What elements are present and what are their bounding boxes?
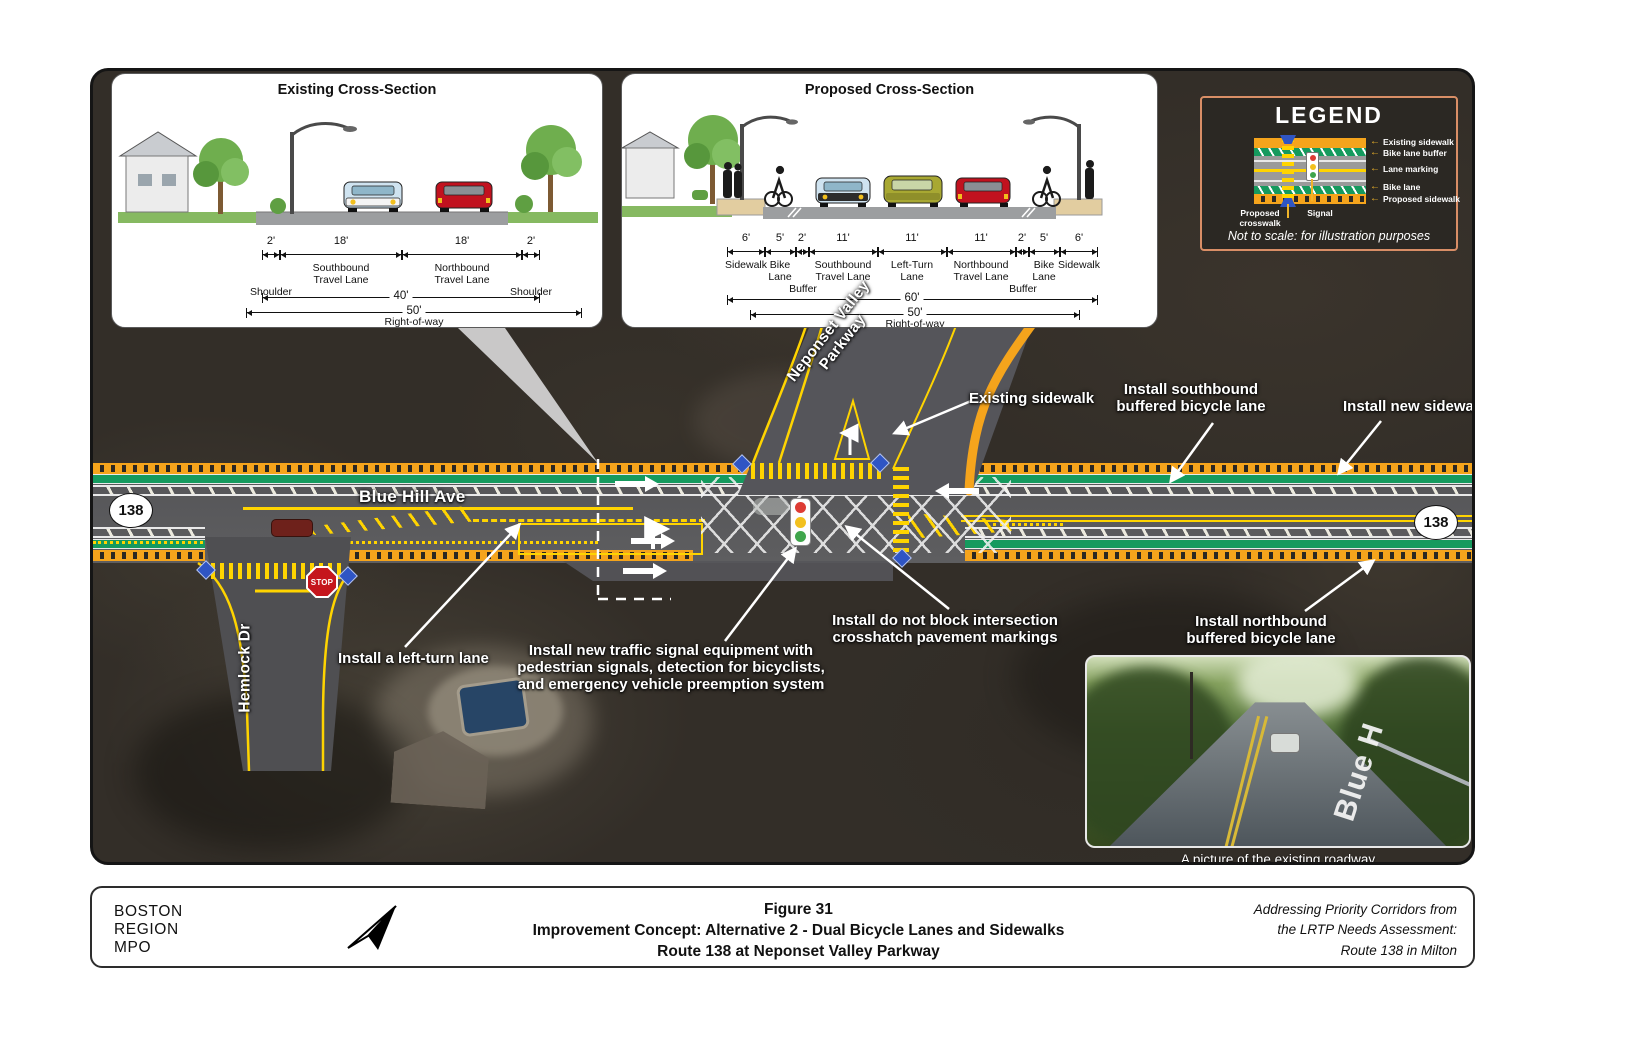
row-label: Right-of-way bbox=[886, 319, 945, 328]
dim-value: 18' bbox=[334, 235, 348, 247]
photo-utility-pole bbox=[1190, 672, 1193, 759]
callout-northbound-bike: Install northbound buffered bicycle lane bbox=[1186, 614, 1335, 648]
dim-segment bbox=[1060, 247, 1098, 257]
dim-segment bbox=[727, 247, 765, 257]
dim-50-label: 50' bbox=[403, 305, 426, 317]
dim-segment bbox=[1029, 247, 1060, 257]
street-label-hemlock-dr: Hemlock Dr bbox=[237, 601, 255, 736]
figure-number: Figure 31 bbox=[533, 900, 1065, 921]
legend-crosswalk-label: Proposed crosswalk bbox=[1230, 208, 1290, 228]
figure-page: Blue Hill Ave Neponset Valley Parkway He… bbox=[0, 0, 1632, 1056]
legend-panel: LEGEND ←Exis bbox=[1200, 96, 1458, 251]
legend-arrow-icon: ← bbox=[1370, 182, 1380, 192]
figure-title-block: Figure 31 Improvement Concept: Alternati… bbox=[533, 900, 1065, 963]
legend-arrow-icon: ← bbox=[1370, 137, 1380, 147]
legend-signal bbox=[1306, 152, 1319, 181]
callout-new-sidewalk: Install new sidewalk bbox=[1343, 399, 1475, 416]
lane-name: Northbound Travel Lane bbox=[434, 263, 489, 287]
car-northbound bbox=[956, 178, 1010, 207]
dim-value: 2' bbox=[527, 235, 535, 247]
car-left-turn bbox=[884, 176, 942, 207]
lane-name: Sidewalk bbox=[1058, 260, 1100, 272]
dim-value: 2' bbox=[798, 232, 806, 244]
row-label: Right-of-way bbox=[385, 317, 444, 328]
legend-crosswalk bbox=[1282, 138, 1294, 204]
dim-value: 2' bbox=[267, 235, 275, 247]
dim-segment bbox=[522, 250, 540, 260]
buffer-label: Buffer bbox=[1009, 284, 1037, 296]
existing-roadway-photo: Blue H bbox=[1085, 655, 1471, 848]
dim-segment bbox=[796, 247, 809, 257]
dim-60-label: 60' bbox=[901, 292, 924, 304]
legend-graphic bbox=[1254, 138, 1366, 204]
legend-item: ←Bike lane buffer bbox=[1370, 148, 1447, 158]
proposed-section-illustration bbox=[622, 94, 1158, 226]
existing-cross-section-panel: Existing Cross-Section bbox=[111, 73, 603, 328]
photo-car bbox=[1270, 733, 1300, 753]
traffic-signal-icon bbox=[790, 498, 811, 546]
legend-item: ←Bike lane bbox=[1370, 182, 1420, 192]
dim-segment bbox=[280, 250, 402, 260]
callout-do-not-block: Install do not block intersection crossh… bbox=[832, 613, 1058, 647]
figure-title-line1: Improvement Concept: Alternative 2 - Dua… bbox=[533, 921, 1065, 942]
dim-value: 11' bbox=[905, 232, 919, 244]
legend-item: ←Existing sidewalk bbox=[1370, 137, 1454, 147]
lane-name: Northbound Travel Lane bbox=[953, 260, 1008, 284]
car-southbound bbox=[816, 178, 870, 207]
org-line: REGION bbox=[114, 921, 183, 939]
legend-item: ←Lane marking bbox=[1370, 164, 1438, 174]
signal-yellow-light bbox=[795, 517, 806, 528]
dim-value: 2' bbox=[1018, 232, 1026, 244]
dim-40-label: 40' bbox=[390, 290, 413, 302]
dim-value: 6' bbox=[742, 232, 750, 244]
dim-segment bbox=[809, 247, 878, 257]
legend-arrow-icon: ← bbox=[1370, 148, 1380, 158]
callout-left-turn: Install a left-turn lane bbox=[338, 651, 489, 668]
signal-green-light bbox=[795, 531, 806, 542]
legend-note: Not to scale: for illustration purposes bbox=[1202, 229, 1456, 243]
lane-name: Bike Lane bbox=[1032, 260, 1055, 284]
legend-signal-label: Signal bbox=[1300, 208, 1340, 218]
callout-wedge bbox=[458, 328, 598, 463]
legend-item: ←Proposed sidewalk bbox=[1370, 194, 1460, 204]
dim-value: 6' bbox=[1075, 232, 1083, 244]
source-note: Addressing Priority Corridors from the L… bbox=[1254, 900, 1457, 961]
figure-title-line2: Route 138 at Neponset Valley Parkway bbox=[533, 942, 1065, 963]
callout-southbound-bike: Install southbound buffered bicycle lane bbox=[1116, 382, 1265, 416]
dim-50-label: 50' bbox=[904, 307, 927, 319]
lane-name: Sidewalk bbox=[725, 260, 767, 272]
dim-segment bbox=[402, 250, 522, 260]
photo-caption: A picture of the existing roadway bbox=[1181, 852, 1375, 865]
car-northbound bbox=[436, 182, 492, 212]
org-line: MPO bbox=[114, 939, 183, 957]
dim-segment bbox=[262, 250, 280, 260]
car-southbound bbox=[344, 182, 402, 212]
callout-signal-equipment: Install new traffic signal equipment wit… bbox=[517, 643, 825, 693]
dim-segment bbox=[765, 247, 796, 257]
aerial-map: Blue Hill Ave Neponset Valley Parkway He… bbox=[90, 68, 1475, 865]
dim-value: 18' bbox=[455, 235, 469, 247]
footer-bar: BOSTON REGION MPO Figure 31 Improvement … bbox=[90, 886, 1475, 968]
legend-title: LEGEND bbox=[1202, 102, 1456, 129]
callout-existing-sidewalk: Existing sidewalk bbox=[969, 391, 1094, 408]
street-label-blue-hill-ave: Blue Hill Ave bbox=[359, 487, 466, 507]
dim-segment bbox=[947, 247, 1016, 257]
approach-widening bbox=[563, 561, 893, 581]
north-arrow-icon bbox=[344, 904, 400, 952]
signal-red-light bbox=[795, 502, 806, 513]
legend-arrow-icon: ← bbox=[1370, 164, 1380, 174]
dim-value: 5' bbox=[1040, 232, 1048, 244]
dim-segment bbox=[878, 247, 947, 257]
lane-name: Bike Lane bbox=[768, 260, 791, 284]
dim-value: 11' bbox=[974, 232, 988, 244]
dim-value: 5' bbox=[776, 232, 784, 244]
dim-segment bbox=[1016, 247, 1029, 257]
mpo-logo-text: BOSTON REGION MPO bbox=[114, 903, 183, 956]
lane-name: Southbound Travel Lane bbox=[313, 263, 370, 287]
route-138-shield-east: 138 bbox=[1414, 505, 1458, 540]
stop-sign-text: STOP bbox=[308, 568, 336, 596]
dim-value: 11' bbox=[836, 232, 850, 244]
route-138-shield-west: 138 bbox=[109, 493, 153, 528]
org-line: BOSTON bbox=[114, 903, 183, 921]
existing-section-illustration bbox=[118, 96, 598, 230]
buffer-label: Buffer bbox=[789, 284, 817, 296]
legend-arrow-icon: ← bbox=[1370, 194, 1380, 204]
